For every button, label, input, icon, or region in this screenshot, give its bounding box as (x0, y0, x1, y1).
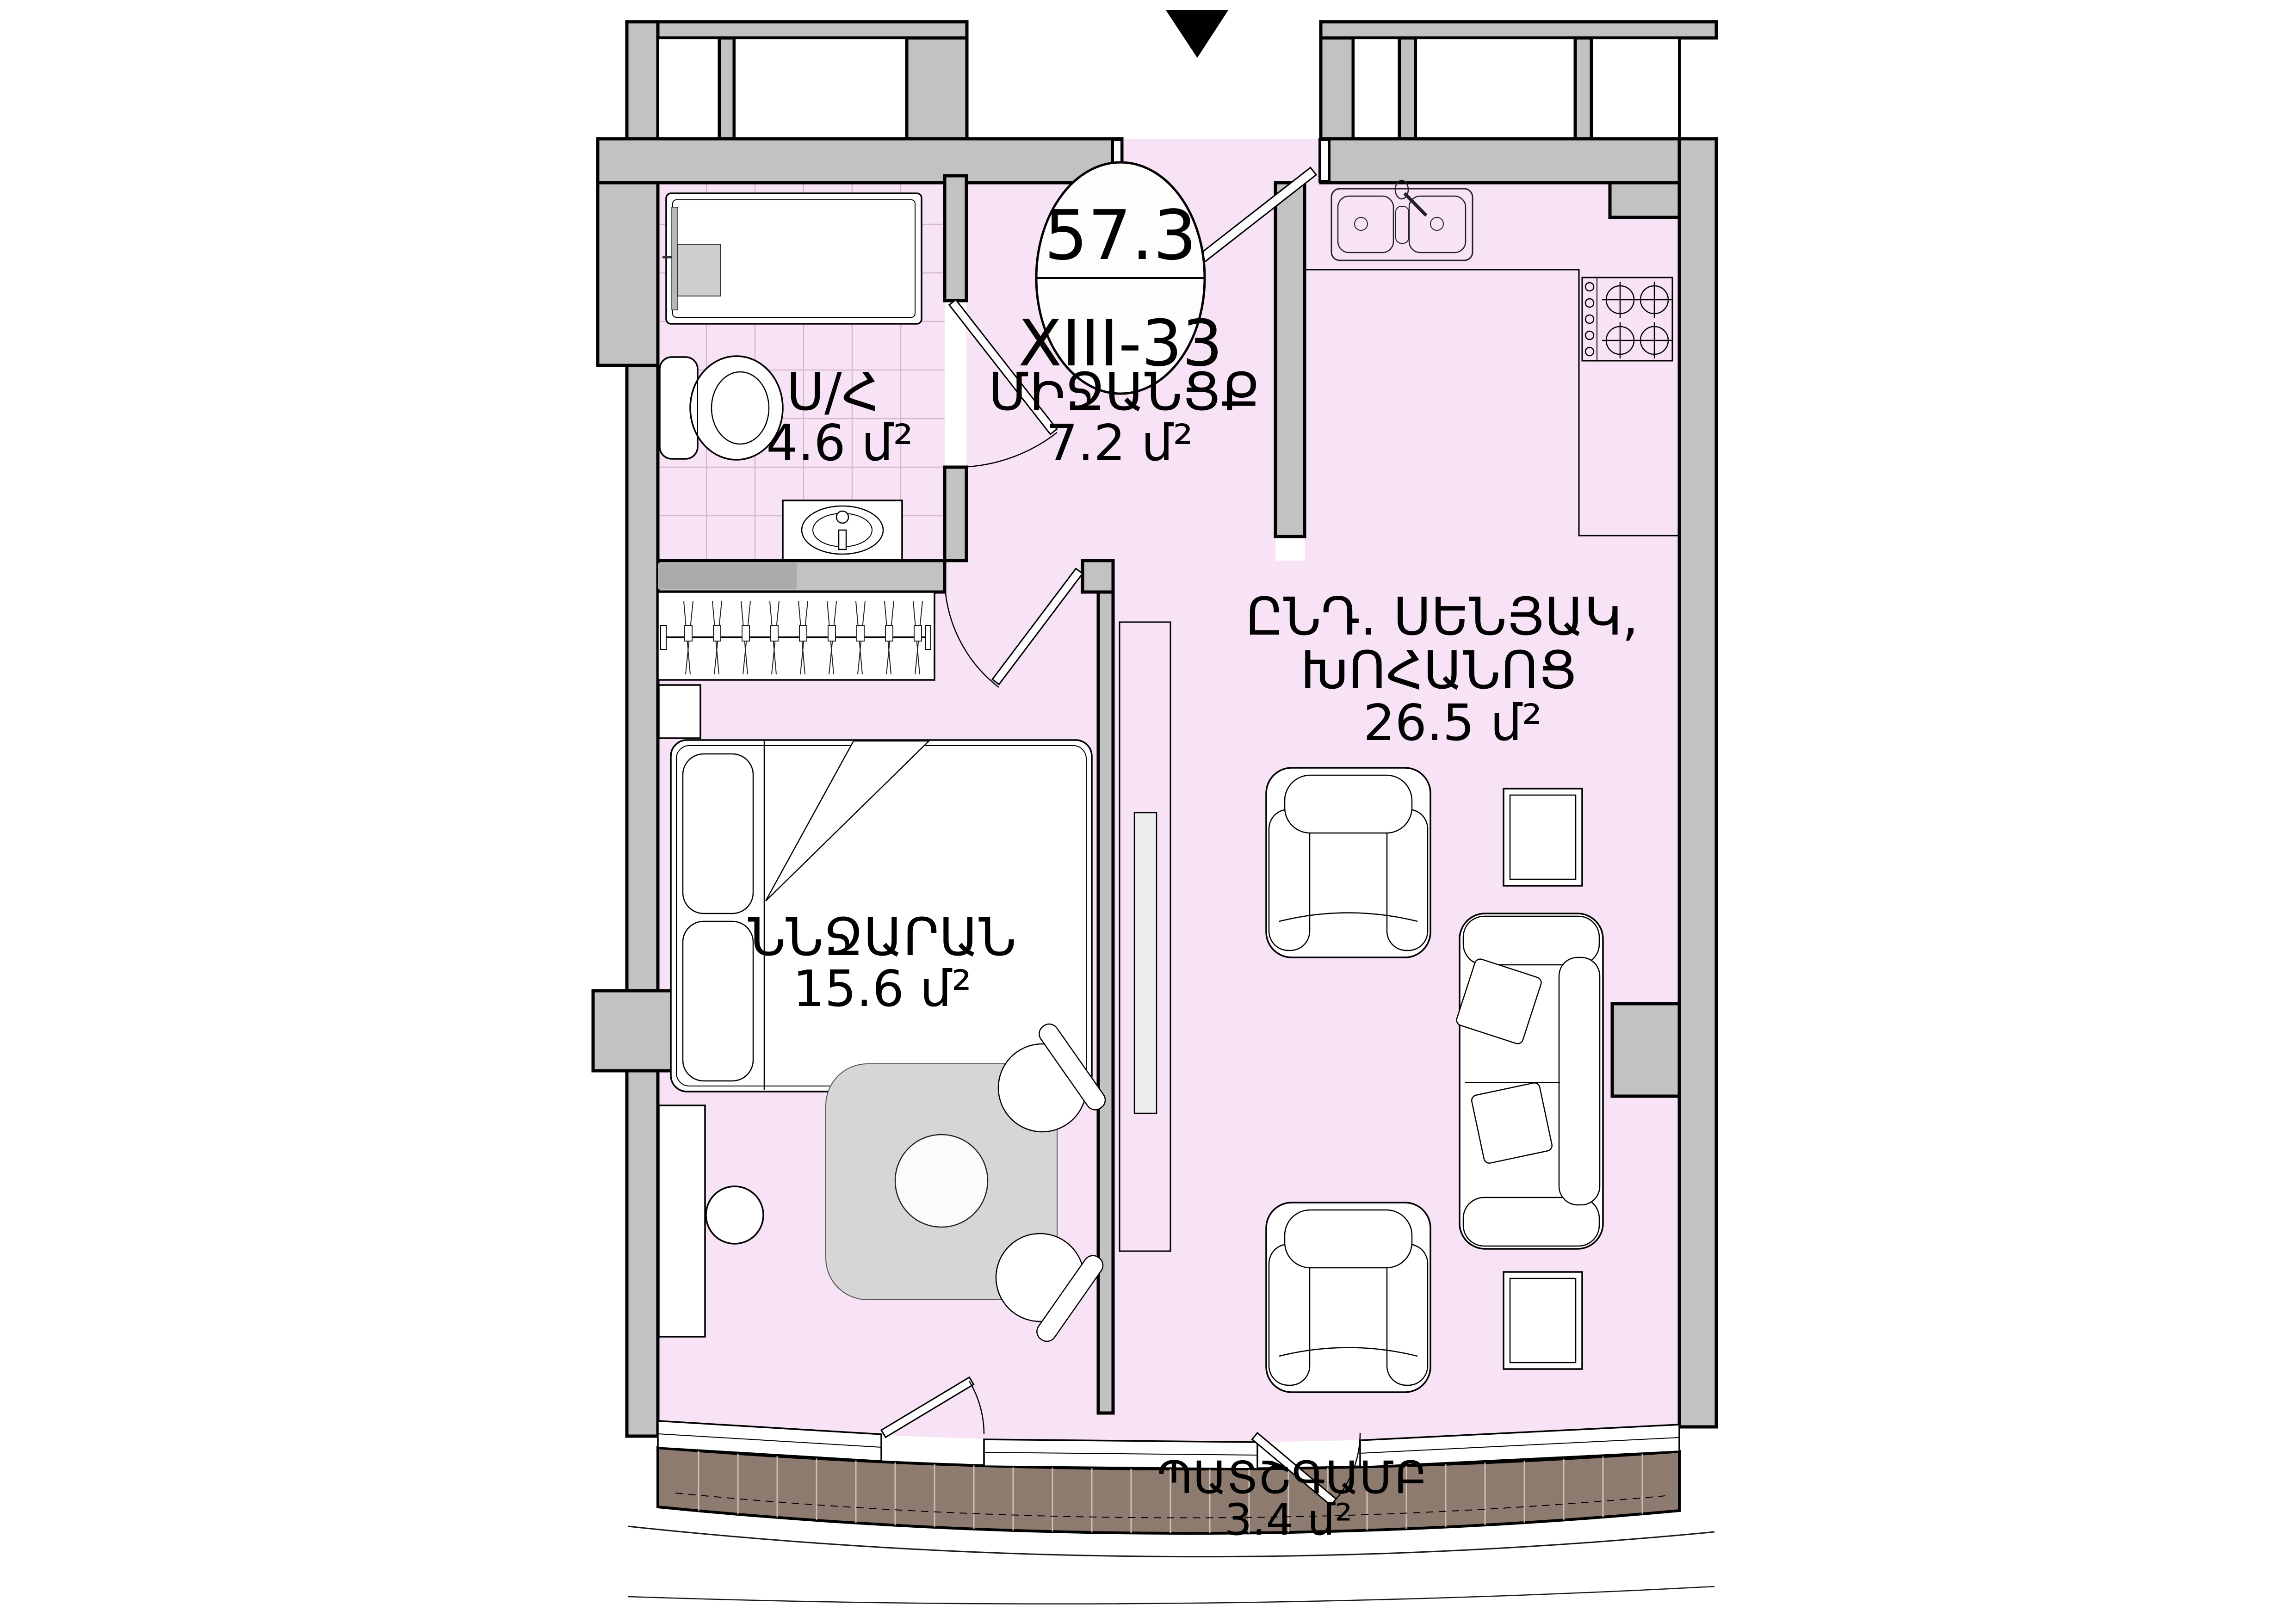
dresser (659, 1105, 705, 1337)
tv (1134, 813, 1157, 1113)
bathtub (662, 193, 922, 324)
bathroom-sink (783, 500, 902, 560)
badge-total-area: 57.3 (1044, 196, 1197, 275)
throw-pillow (1471, 1082, 1553, 1164)
wall-bedroom-door-stub (1083, 561, 1113, 592)
label-living-area: 26.5 մ² (1363, 694, 1542, 752)
label-bathroom-area: 4.6 մ² (766, 414, 913, 472)
label-balcony-area: 3.4 մ² (1225, 1495, 1353, 1545)
floor-plan-canvas: 57.3 XIII-33 ՄԻՋԱՆՑՔ 7.2 մ² Ս/Հ 4.6 մ² Ը… (0, 0, 2296, 1623)
window-top-left-1 (658, 38, 719, 139)
label-living-name-1: ԸՆԴ. ՍԵՆՅԱԿ, (1245, 587, 1639, 647)
side-table-top (1504, 789, 1582, 886)
wall-bedroom-living-divider (1098, 592, 1113, 1413)
unit-badge: 57.3 XIII-33 (1018, 162, 1223, 394)
armchair-bottom (1266, 1203, 1430, 1392)
wall-band-right (1321, 139, 1716, 183)
label-hallway-area: 7.2 մ² (1046, 414, 1193, 472)
wall-top-left-thin (627, 22, 967, 38)
wall-right (1679, 139, 1716, 1427)
label-bedroom-name: ՆՆՋԱՐԱՆ (748, 907, 1016, 968)
wall-kitchen-partition (1275, 183, 1305, 537)
pillar-right (1612, 1004, 1679, 1096)
label-bathroom-name: Ս/Հ (786, 362, 879, 422)
window-top-right-2 (1416, 38, 1575, 139)
wardrobe (658, 592, 934, 680)
entrance-arrow-icon (1166, 10, 1228, 58)
shower-bar (672, 207, 678, 310)
wall-bathroom-right-lower (945, 467, 966, 561)
floor-plan-page: 57.3 XIII-33 ՄԻՋԱՆՑՔ 7.2 մ² Ս/Հ 4.6 մ² Ը… (0, 0, 2296, 1623)
wall-tr-pier-2 (1575, 38, 1591, 139)
wall-left-wide (598, 183, 658, 365)
entry-jamb-right (1320, 140, 1329, 181)
label-living-name-2: ԽՈՀԱՆՈՑ (1300, 641, 1577, 701)
shower-mixer (678, 244, 720, 296)
wall-tl-pier-right (907, 38, 967, 139)
tv-console (1120, 622, 1170, 1251)
nightstand (659, 685, 700, 738)
round-table (895, 1135, 988, 1227)
faucet-icon (836, 511, 848, 523)
window-top-right-1 (1353, 38, 1399, 139)
stool (706, 1186, 763, 1244)
label-bedroom-area: 15.6 մ² (793, 960, 972, 1018)
wall-band-left (598, 139, 1122, 183)
pillow (683, 754, 753, 913)
wall-top-right-thin (1321, 22, 1716, 38)
label-hallway-name: ՄԻՋԱՆՑՔ (988, 362, 1260, 422)
armchair-top (1266, 768, 1430, 957)
ground-line (628, 1586, 1714, 1604)
sofa (1455, 913, 1603, 1249)
wall-bathroom-right-upper (945, 176, 966, 301)
toilet (660, 356, 783, 460)
wall-left (627, 365, 658, 1436)
wall-tl-pier-mid (719, 38, 734, 139)
side-table-bottom (1504, 1272, 1582, 1369)
kitchen-floor (1305, 183, 1679, 583)
pillow (683, 921, 753, 1081)
wall-tl-pier-left (627, 22, 658, 139)
window-top-left-2 (734, 38, 907, 139)
wall-tr-pier-1 (1399, 38, 1416, 139)
wall-threshold-shade (658, 563, 797, 589)
wall-kitchen-corner-chunk (1610, 183, 1679, 217)
window-top-right-3 (1591, 38, 1679, 139)
